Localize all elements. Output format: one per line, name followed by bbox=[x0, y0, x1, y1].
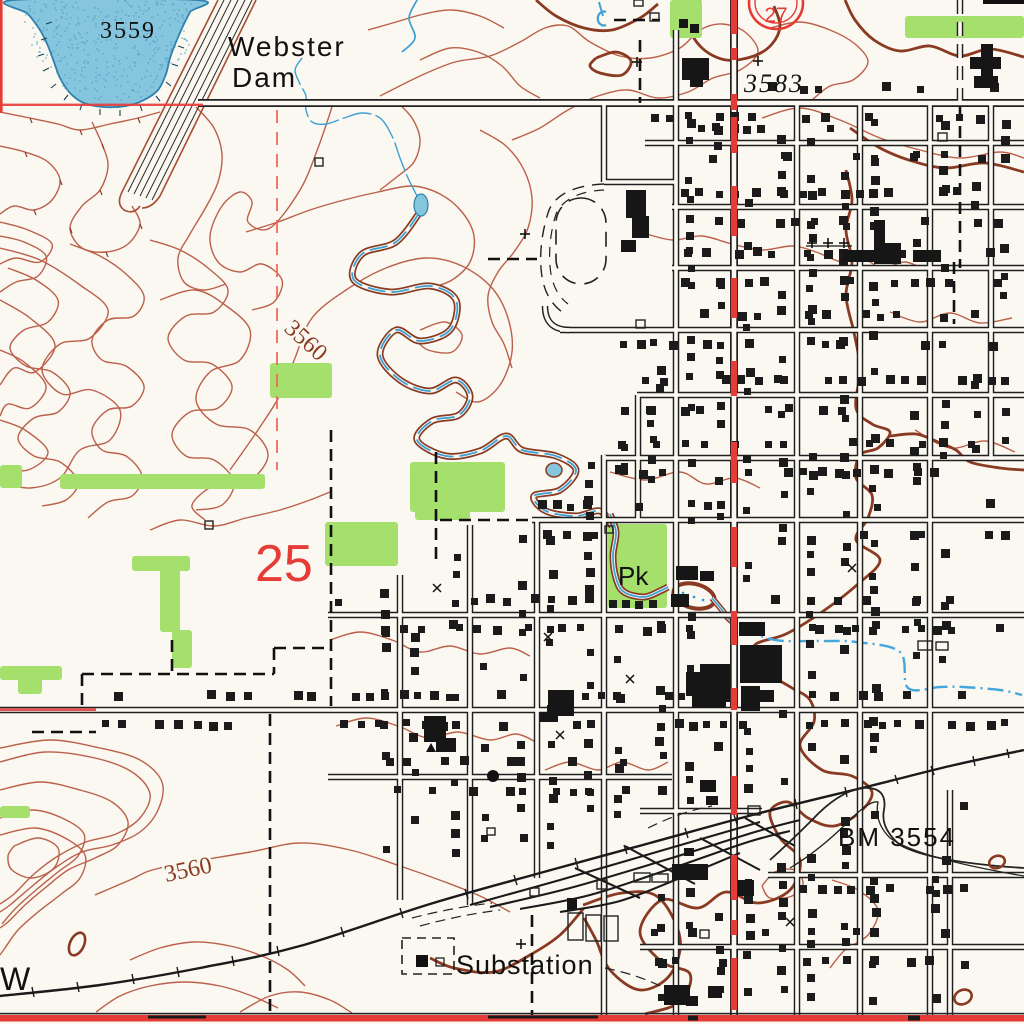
svg-text:25: 25 bbox=[255, 535, 313, 593]
svg-text:27: 27 bbox=[764, 4, 787, 27]
svg-text:3583: 3583 bbox=[743, 69, 804, 98]
svg-text:3559: 3559 bbox=[100, 18, 156, 44]
svg-text:Dam: Dam bbox=[232, 62, 297, 93]
svg-text:Webster: Webster bbox=[228, 31, 346, 62]
svg-text:Pk: Pk bbox=[618, 561, 649, 591]
svg-text:BM 3554: BM 3554 bbox=[838, 822, 956, 852]
svg-text:W: W bbox=[0, 961, 31, 997]
svg-text:Substation: Substation bbox=[456, 950, 594, 980]
